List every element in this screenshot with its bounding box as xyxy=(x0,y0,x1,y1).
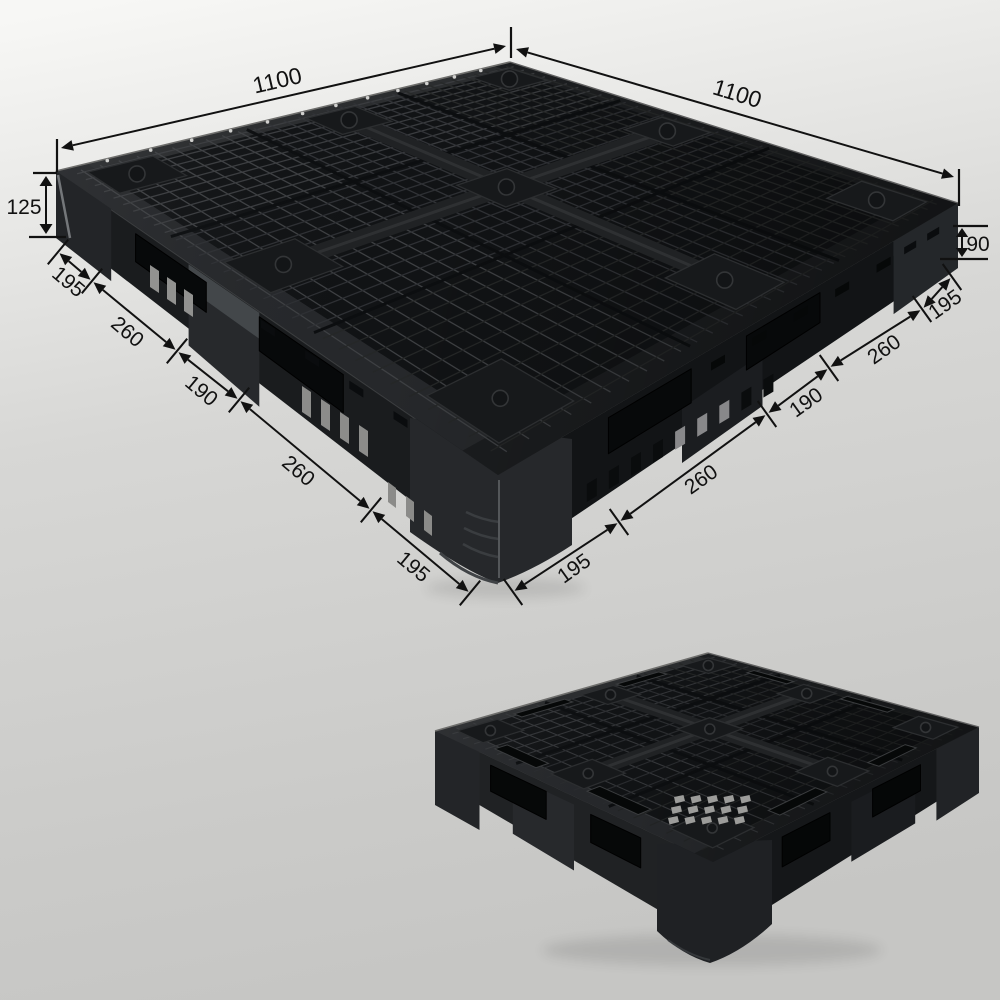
svg-text:125: 125 xyxy=(6,196,41,219)
svg-text:90: 90 xyxy=(966,233,989,256)
